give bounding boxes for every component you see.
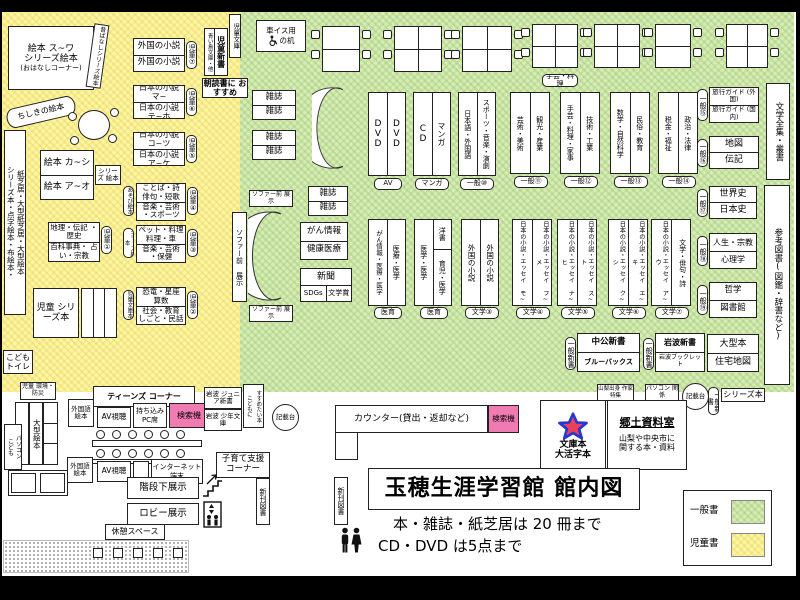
shelf-label: 日本の小説 ア~ケ <box>134 149 184 167</box>
chair <box>128 430 137 439</box>
shelf-label: 健康医療 <box>301 241 347 260</box>
chair <box>160 430 169 439</box>
av-viewing-seat: AV視聴 <box>97 461 131 482</box>
legend-label-children: 児童書 <box>690 539 719 550</box>
tax-politics-law-shelf: 税金・福祉 政治・法律 <box>658 92 698 174</box>
foreign-language-picture-books-shelf: 外国語 絵本 <box>68 399 94 427</box>
tag-jidou-3: 児童③ <box>187 229 198 257</box>
tag-bungaku-4: 文学④ <box>516 307 550 319</box>
chair <box>112 430 121 439</box>
shelf-label: 心理学 <box>710 251 756 269</box>
shelf-cell <box>104 289 116 337</box>
math-science-education-shelf: 数学・自然科学 民俗・教育 <box>610 92 650 174</box>
area-label: こども <box>5 425 13 469</box>
lending-rule: CD・DVD は5点まで <box>378 535 522 556</box>
area-label: 大活字本 <box>555 450 591 460</box>
shelf-label: 児童新書 <box>214 29 227 75</box>
study-table <box>394 26 442 72</box>
world-japan-history-shelf: 世界史 日本史 <box>709 186 757 219</box>
shelf-label: DVD <box>369 93 387 175</box>
tag-ippan-17: 一般⑰ <box>697 189 708 217</box>
desk-label: 車イス用 <box>266 26 296 35</box>
tag-ippan-16: 一般⑯ <box>697 139 708 167</box>
shelf-label: 恐竜・星座 算数 <box>137 288 185 306</box>
study-table <box>655 24 691 68</box>
crafts-cooking-tag: 手芸・料理 <box>542 74 578 87</box>
study-table <box>322 26 360 72</box>
chair <box>770 28 779 37</box>
iwanami-shinsho-shelf: 岩波新書 岩波ブックレット <box>655 333 705 372</box>
wheelchair-desk: 車イス用 の机 <box>256 20 306 52</box>
shelf-label: 絵本 カ~シ <box>41 151 93 175</box>
picture-books-storytime-shelf: 絵本 ス~ワ シリーズ絵本 (おはなしコーナー) <box>8 26 94 90</box>
new-books-shelf: 新刊図書 <box>256 478 270 525</box>
travel-guide-shelf: 旅行ガイド (外国) 旅行ガイド (国内) <box>709 87 759 123</box>
tag-ippan-shinsho: 一般新書 <box>643 338 654 370</box>
large-books-housing-map-shelf: 大型本 住宅地図 <box>707 334 759 372</box>
shelf-label: ペット・料理 料理・車 <box>137 226 185 244</box>
lending-counter: カウンター(貸出・返却など) <box>335 405 488 433</box>
shelf-label: 旅行ガイド (国内) <box>710 105 758 123</box>
shelf-label: SDGs <box>301 286 327 302</box>
art-tourism-shelf: 芸術・美術 観光・産業 <box>510 92 550 174</box>
bench-cushion <box>11 473 36 493</box>
local-materials-room: 郷土資料室 山梨や中央市に 関する本・資料 <box>607 400 687 470</box>
tag-ippan-19: 一般⑲ <box>697 285 708 315</box>
shelf-label: 日本の小説・エッセイ フ~メ <box>532 220 552 305</box>
shelf-label: 日本の小説・エッセイ モ~ <box>513 220 532 305</box>
chair <box>770 48 779 57</box>
children-paperback-tag: 児童文庫本 <box>123 290 134 320</box>
shelf-label: 文学・俳句・詩 <box>671 220 691 305</box>
study-counter <box>92 440 202 447</box>
series-picture-books-box: シリーズ 絵本 <box>95 165 121 185</box>
shelf-label: 住宅地図 <box>708 353 758 372</box>
lending-rule: 本・雑誌・紙芝居は 20 冊まで <box>393 513 602 534</box>
shelf-label: シリーズ本・点字絵本・布絵本・ <box>5 131 15 314</box>
tag-bungaku-7: 文学⑦ <box>655 307 689 319</box>
children-geography-encyclopedia-shelf: 地理・伝記 ・歴史 百科事典・ 占い・宗教 <box>48 222 100 262</box>
shelf-label: 世界史 <box>710 187 756 202</box>
shelf-label: 旅行ガイド (外国) <box>710 88 758 105</box>
bookshelf-unit <box>81 288 117 338</box>
shelf-label: すすめたい本 <box>254 385 264 427</box>
search-terminal: 検索機 <box>488 405 519 433</box>
shelf-label: 音楽・芸術 ・保健 <box>137 244 185 263</box>
foreign-language-picture-books-shelf: 外国語 絵本 <box>67 457 93 483</box>
bench <box>8 470 68 496</box>
series-braille-kamishibai-shelf: シリーズ本・点字絵本・布絵本・ 紙芝居・大型紙芝居・大型絵本 <box>4 130 26 315</box>
shelf-cell: SDGs 文学賞 <box>301 285 351 302</box>
shelf-label: 政治・法律 <box>678 93 698 173</box>
shelf-label: マンガ <box>432 93 451 175</box>
computer-books-tag: パソコン 関係 <box>645 384 679 401</box>
chair <box>521 48 530 57</box>
tag-ippan-shinsho: 一般新書 <box>565 337 576 370</box>
shelf-label: 雑誌 <box>253 145 295 160</box>
chair <box>715 48 724 57</box>
shelf-label: 数学・自然科学 <box>611 93 630 173</box>
crafts-technology-shelf: 手芸・料理・家事 技術・工業 <box>560 92 600 174</box>
rest-space-label: 休憩スペース <box>105 524 165 540</box>
sofa-front-display: ソファー前 展示 <box>232 212 247 302</box>
chair <box>715 28 724 37</box>
rest-seat <box>113 548 123 558</box>
tag-iiku: 医育 <box>420 307 448 319</box>
tag-bungaku-3: 文学③ <box>465 307 499 319</box>
chair <box>96 430 105 439</box>
bookshelf-unit <box>43 402 58 465</box>
picture-books-ka-shi-shelf: 絵本 カ~シ 絵本 ア~オ <box>40 150 94 200</box>
shelf-label: ブルーバックス <box>578 352 639 371</box>
chair <box>176 430 185 439</box>
shelf-label: 芸術・美術 <box>511 93 530 173</box>
magazine-shelf: 雑誌 雑誌 <box>252 130 296 160</box>
desk-label-row: の机 <box>268 35 295 46</box>
dvd-shelf: DVD DVD <box>368 92 406 176</box>
shelf-label: 医療・医学 <box>387 220 406 305</box>
tag-av: AV <box>374 178 402 190</box>
chair <box>383 50 392 59</box>
shelf-label: 雑誌 <box>253 91 295 105</box>
shelf-label: 雑誌 <box>253 105 295 120</box>
study-table <box>726 24 768 68</box>
search-terminal: 検索機 <box>169 403 209 428</box>
literature-collection-shelf: 文学全集・叢書 <box>766 83 790 180</box>
shelf-label: 岩波ブックレット <box>656 352 704 371</box>
shelf-sublabel: 青い鳥文庫・他 <box>205 29 214 75</box>
kids-toilet-label: こども トイレ <box>3 350 33 374</box>
shelf-cell <box>44 403 57 423</box>
children-pets-cooking-shelf: ペット・料理 料理・車 音楽・芸術 ・保健 <box>136 225 186 263</box>
tag-jidou-4: 児童④ <box>187 187 198 215</box>
foreign-novels-shelf: 外国の小説 外国の小説 <box>461 219 499 306</box>
desk-label: の机 <box>280 36 295 45</box>
map-canvas: 絵本 ス~ワ シリーズ絵本 (おはなしコーナー) 昔ばなしシリーズ絵本 ちしきの… <box>2 12 796 576</box>
chair <box>644 28 653 37</box>
shelf-label: 日本の小説・エッセイ エ~キ <box>628 220 648 305</box>
chair <box>451 30 460 39</box>
children-series-books-shelf: 児童 シリーズ本 <box>33 288 79 338</box>
shelf-label: 図書館 <box>710 300 756 318</box>
legend-swatch-general <box>731 500 765 524</box>
shelf-label: がん情報・医療・医学 <box>369 220 387 305</box>
philosophy-library-shelf: 哲学 図書館 <box>709 282 757 318</box>
shelf-label: 日本語・外国語 <box>459 93 477 175</box>
shelf-label: 日本の小説・エッセイ ク~シ <box>609 220 628 305</box>
chair <box>311 30 320 39</box>
children-jp-novels-ko-shelf: 日本の小説 コ~ツ 日本の小説 ア~ケ <box>133 132 185 166</box>
tag-ippan-12: 一般⑫ <box>564 176 598 188</box>
rest-seat <box>93 548 103 558</box>
childcare-support-corner: 子育て支援 コーナー <box>216 452 270 478</box>
legend: 一般書 児童書 <box>683 490 772 566</box>
sofa-front-display: ソファー前 展示 <box>249 190 293 207</box>
chair <box>693 48 702 57</box>
chair <box>644 48 653 57</box>
area-label: パソコン <box>13 425 21 469</box>
shelf-label: 医学・医学 <box>415 220 433 305</box>
tag-iiku: 医育 <box>374 307 402 319</box>
under-stairs-display: 階段下展示 <box>127 477 199 499</box>
sofa-front-display: ソファー前 展示 <box>249 305 293 322</box>
shelf-label: 大型本 <box>708 335 758 353</box>
shelf-label: シリーズ絵本 <box>24 54 78 64</box>
chair <box>383 30 392 39</box>
writing-stand: 記載台 <box>272 404 299 431</box>
shelf-label: 新聞 <box>301 269 351 285</box>
cancer-info-health-shelf: がん情報 健康医療 <box>300 222 348 260</box>
shelf-label: 哲学 <box>710 283 756 300</box>
shelf-label: 絵本 ス~ワ <box>28 44 74 54</box>
tag-bungaku-5: 文学⑤ <box>561 307 595 319</box>
study-table <box>462 26 512 72</box>
shelf-label: 日本の小説・エッセイ ス~ト <box>577 220 597 305</box>
room-desc: 関する本・資料 <box>619 443 675 452</box>
shelf-label: 雑誌 <box>309 201 347 216</box>
maps-biography-shelf: 地図 伝記 <box>709 136 759 169</box>
shelf-label: 外国の小説 <box>134 39 184 55</box>
children-jp-novels-ma-shelf: 日本の小説 マ~ 日本の小説 テ~ホ <box>133 85 185 119</box>
play-picture-books-tag: あそび絵本 <box>123 186 134 216</box>
children-bunko-shelf: 児童文庫 <box>229 14 241 58</box>
shelf-label: 文学賞 <box>327 286 352 302</box>
shelf-label: 税金・福祉 <box>659 93 678 173</box>
shelf-cell <box>44 423 57 444</box>
stairs-icon <box>201 472 223 498</box>
legend-row: 児童書 <box>690 533 765 557</box>
legend-row: 一般書 <box>690 500 765 524</box>
shelf-label: CD <box>414 93 432 175</box>
chair <box>176 449 185 458</box>
chair <box>311 50 320 59</box>
chair <box>110 108 119 117</box>
star-icon <box>556 412 590 440</box>
map-title: 玉穂生涯学習館 館内図 <box>368 468 640 510</box>
life-religion-psychology-shelf: 人生・宗教 心理学 <box>709 233 757 269</box>
tag-manga: マンガ <box>415 178 449 190</box>
shelf-label: 日本の小説 マ~ <box>134 85 184 102</box>
tag-ippan-11: 一般⑪ <box>514 176 548 188</box>
tag-jidou-1: 児童① <box>101 226 112 254</box>
shelf-label: 百科事典・ 占い・宗教 <box>49 242 99 262</box>
chair <box>451 50 460 59</box>
magazine-shelf: 雑誌 雑誌 <box>308 186 348 216</box>
tag-jidou-2: 児童② <box>187 291 198 319</box>
bunko-large-print-area: 文庫本 大活字本 <box>540 400 606 470</box>
chair <box>96 449 105 458</box>
cancer-medical-shelf: がん情報・医療・医学 医療・医学 <box>368 219 406 306</box>
crescent-sofa <box>248 210 290 302</box>
shelf-label: 日本の小説・エッセイ ナ~ヒ <box>558 220 577 305</box>
chair <box>362 50 371 59</box>
shelf-cell <box>82 289 93 337</box>
legend-swatch-children <box>731 533 765 557</box>
shelf-label: 地理・伝記 ・歴史 <box>49 223 99 242</box>
shelf-label: 岩波新書 <box>656 334 704 352</box>
shelf-label: 紙芝居・大型紙芝居・大型絵本 <box>15 131 25 314</box>
shelf-label: 雑誌 <box>309 187 347 201</box>
shelf-label: 洋書 <box>434 220 452 250</box>
shelf-label: 中公新書 <box>578 334 639 352</box>
shelf-label: DVD <box>387 93 406 175</box>
shelf-label: (おはなしコーナー) <box>20 64 81 72</box>
recommended-for-kids-shelf: こどもに すすめたい本 <box>243 384 264 428</box>
chair <box>144 430 153 439</box>
chair <box>583 48 592 57</box>
bench-cushion <box>40 473 65 493</box>
shelf-label: 手芸・料理・家事 <box>561 93 580 173</box>
tag-ippan-13: 一般⑬ <box>614 176 648 188</box>
jp-novels-essay-mo-shelf: 日本の小説・エッセイ モ~ 日本の小説・エッセイ フ~メ <box>512 219 552 306</box>
shelf-label: 技術・工業 <box>580 93 600 173</box>
iwanami-shonen-bunko-shelf: 岩波 少年文庫 <box>204 409 242 431</box>
study-table <box>532 24 578 68</box>
children-shinsho-shelf: 青い鳥文庫・他 児童新書 <box>204 28 228 76</box>
shelf-label: 人生・宗教 <box>710 234 756 251</box>
iwanami-junior-shinsho-shelf: 岩波 ジュニア新書 <box>204 387 242 409</box>
series-books-shelf: シリーズ本 <box>721 388 765 402</box>
legend-label-general: 一般書 <box>690 506 719 517</box>
shelf-label: 雑誌 <box>253 131 295 145</box>
shelf-label: 伝記 <box>710 152 758 168</box>
shelf-label: 観光・産業 <box>530 93 550 173</box>
shelf-cell <box>44 443 57 464</box>
shelf-label: 絵本 ア~オ <box>41 175 93 200</box>
room-desc: 山梨や中央市に <box>619 434 675 443</box>
new-books-shelf: 新刊図書 <box>334 477 348 525</box>
shelf-label: 外国の小説 <box>462 220 480 305</box>
cd-manga-shelf: CD マンガ <box>413 92 451 176</box>
study-table <box>594 24 640 68</box>
shelf-label: ことば・詩 俳句・短歌 <box>137 184 185 202</box>
chair <box>68 112 77 121</box>
tag-ippan-10: 一般⑩ <box>460 178 494 190</box>
reference-books-shelf: 参考図書(図鑑・辞書など) <box>764 185 790 385</box>
shelf-label: 社会・教育 しごと・民話 <box>137 306 185 325</box>
tag-jidou-7: 児童⑦ <box>186 41 197 69</box>
shelf-label: 日本の小説・エッセイ ア~ウ <box>652 220 671 305</box>
lobby-display: ロビー展示 <box>127 503 199 525</box>
rest-seat <box>153 548 163 558</box>
newspaper-shelf: 新聞 SDGs 文学賞 <box>300 268 352 302</box>
shelf-label: スポーツ・音楽・演劇 <box>477 93 496 175</box>
byod-pc-seat: 持ち込み PC席 <box>133 403 167 428</box>
shelf-label: 育児・医学 <box>434 250 452 305</box>
elevator-icon <box>203 501 222 528</box>
shelf-label: 外国の小説 <box>134 55 184 72</box>
kids-computer-area: こども パソコン <box>4 424 22 470</box>
rest-seat <box>133 548 143 558</box>
shelf-label: 日本の小説 コ~ツ <box>134 132 184 149</box>
chair <box>583 28 592 37</box>
floor-map-page: 絵本 ス~ワ シリーズ絵本 (おはなしコーナー) 昔ばなしシリーズ絵本 ちしきの… <box>0 0 800 600</box>
shelf-label: こどもに <box>244 385 254 427</box>
tag-bungaku-6: 文学⑥ <box>612 307 646 319</box>
chair <box>160 449 169 458</box>
large-picture-books-shelf: 大型絵本 <box>29 402 43 465</box>
counter-return-leg <box>335 432 358 460</box>
jp-novels-essay-na-shelf: 日本の小説・エッセイ ナ~ヒ 日本の小説・エッセイ ス~ト <box>557 219 597 306</box>
shelf-cell <box>93 289 105 337</box>
crescent-sofa <box>312 86 352 170</box>
chair <box>112 449 121 458</box>
morning-reading-tag: 朝読書に おすすめ <box>202 78 248 98</box>
shelf-cell: 洋書 育児・医学 <box>433 220 452 305</box>
chair <box>144 449 153 458</box>
tag-ippan-14: 一般⑭ <box>662 176 696 188</box>
children-language-poetry-shelf: ことば・詩 俳句・短歌 音楽・芸術 ・スポーツ <box>136 183 186 221</box>
round-table <box>78 110 110 140</box>
chair <box>693 28 702 37</box>
chuko-shinsho-shelf: 中公新書 ブルーバックス <box>577 333 640 372</box>
shelf-label: 民俗・教育 <box>630 93 650 173</box>
restroom-icon <box>339 526 363 556</box>
shelf-label: 音楽・芸術 ・スポーツ <box>137 202 185 221</box>
magazine-shelf: 雑誌 雑誌 <box>252 90 296 120</box>
chair <box>128 449 137 458</box>
shelf-label: 地図 <box>710 137 758 152</box>
tag-jidou-6: 児童⑥ <box>186 88 197 116</box>
wheelchair-icon <box>268 35 279 46</box>
av-viewing-seat: AV視聴 <box>97 407 131 428</box>
medical-foreign-childcare-shelf: 医学・医学 洋書 育児・医学 <box>414 219 452 306</box>
shelf-label: 日本史 <box>710 202 756 218</box>
shelf-label: がん情報 <box>301 223 347 241</box>
chair <box>521 28 530 37</box>
rest-seat <box>173 548 183 558</box>
children-environment-disaster-shelf: 児童 環境・防災 <box>20 382 56 400</box>
chair <box>108 134 117 143</box>
jp-novels-essay-ku-shelf: 日本の小説・エッセイ ク~シ 日本の小説・エッセイ エ~キ <box>608 219 648 306</box>
yamanashi-authors-tag: 山梨出身 作家特集 <box>597 384 634 401</box>
area-label: 文庫本 <box>559 440 586 450</box>
shelf-label: 外国の小説 <box>480 220 499 305</box>
tag-ippan-shinsho: 一般新書 <box>708 387 719 415</box>
chair <box>362 30 371 39</box>
tag-jidou-5: 児童⑤ <box>186 135 197 163</box>
chair <box>70 136 79 145</box>
children-dinosaur-society-shelf: 恐竜・星座 算数 社会・教育 しごと・民話 <box>136 287 186 325</box>
tag-ippan-15: 一般⑮ <box>697 89 708 121</box>
tag-ippan-18: 一般⑱ <box>697 236 708 266</box>
language-sports-music-shelf: 日本語・外国語 スポーツ・音楽・演劇 <box>458 92 496 176</box>
shelf-label: 日本の小説 テ~ホ <box>134 102 184 120</box>
jp-novels-essay-a-shelf: 日本の小説・エッセイ ア~ウ 文学・俳句・詩 <box>651 219 691 306</box>
children-foreign-novels-shelf: 外国の小説 外国の小説 <box>133 38 185 72</box>
series-picture-books-tag: シリーズ絵本 <box>123 228 134 258</box>
room-title: 郷土資料室 <box>620 417 675 430</box>
